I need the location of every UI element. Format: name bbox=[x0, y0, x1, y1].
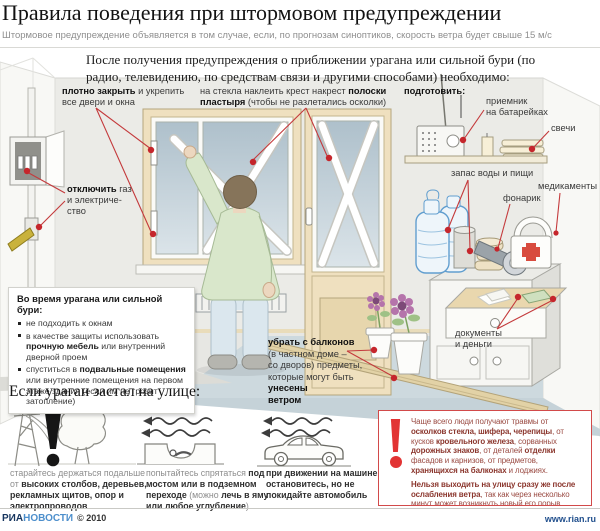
leaf bbox=[367, 315, 377, 321]
drawer-knob bbox=[491, 319, 500, 328]
shoe bbox=[242, 355, 271, 369]
pants-leg bbox=[211, 295, 236, 363]
head bbox=[224, 176, 257, 209]
red-cross bbox=[522, 247, 540, 257]
infographic-storm-warning: Правила поведения при штормовом предупре… bbox=[0, 0, 600, 531]
warning-paragraph: Чаще всего люди получают травмы от оскол… bbox=[411, 417, 584, 476]
label-gas-electricity: отключить гази электриче-ство bbox=[67, 184, 137, 217]
pot-rim bbox=[366, 328, 394, 335]
label-radio: приемникна батарейках bbox=[486, 96, 548, 118]
label-documents-money: документыи деньги bbox=[455, 328, 502, 350]
candle-icon bbox=[482, 137, 493, 157]
breaker-switches bbox=[18, 156, 37, 169]
label-medicines: медикаменты bbox=[538, 181, 597, 192]
flower-pot-icon bbox=[394, 340, 424, 374]
can-lid bbox=[454, 227, 475, 234]
pot-rim bbox=[391, 333, 427, 341]
underpass-icon bbox=[137, 444, 224, 464]
car-icon bbox=[257, 436, 351, 466]
door-knob bbox=[470, 357, 478, 365]
radio-dial bbox=[447, 135, 459, 147]
street-section-heading: Если ураган застал на улице: bbox=[9, 383, 200, 401]
street-tip-poles: старайтесь держаться подальше от высоких… bbox=[10, 468, 150, 512]
cabinet bbox=[430, 264, 566, 386]
shelf-board bbox=[405, 156, 547, 163]
during-item: не подходить к окнам bbox=[17, 318, 186, 329]
intro-text: После получения предупреждения о приближ… bbox=[86, 52, 556, 86]
wind-arrows-icon bbox=[141, 417, 212, 438]
warning-exclamation-dot bbox=[390, 456, 402, 468]
leaf bbox=[408, 315, 420, 322]
warning-exclamation-icon bbox=[390, 419, 401, 452]
leaf bbox=[392, 319, 404, 326]
warning-box: Чаще всего люди получают травмы от оскол… bbox=[378, 410, 592, 506]
ria-novosti-logo: РИАНОВОСТИ© 2010 bbox=[2, 513, 106, 524]
during-storm-title: Во время урагана или сильной бури: bbox=[17, 293, 186, 315]
label-candles: свечи bbox=[551, 123, 575, 134]
tree-icon bbox=[58, 406, 105, 464]
bottle-cap bbox=[447, 196, 460, 208]
label-water-food: запас воды и пищи bbox=[451, 168, 533, 179]
hand bbox=[184, 146, 196, 158]
copyright: © 2010 bbox=[77, 513, 106, 523]
warning-paragraph: Нельзя выходить на улицу сразу же после … bbox=[411, 480, 584, 506]
bottle-cap bbox=[424, 200, 439, 214]
label-flashlight: фонарик bbox=[503, 193, 541, 204]
fuse-box-door bbox=[46, 131, 64, 187]
during-item: в качестве защиты использовать прочную м… bbox=[17, 331, 186, 363]
water-bottle-icon bbox=[416, 212, 449, 273]
page-subtitle: Штормовое предупреждение объявляется в т… bbox=[2, 30, 552, 41]
site-link[interactable]: www.rian.ru bbox=[545, 514, 596, 524]
footer-divider bbox=[0, 508, 600, 509]
header-divider bbox=[0, 47, 600, 48]
lying-person-body bbox=[176, 452, 190, 455]
street-tip-underpass: попытайтесь спрятаться под мостом или в … bbox=[146, 468, 272, 512]
door-knob bbox=[493, 357, 501, 365]
shoe bbox=[208, 355, 237, 369]
pants-leg bbox=[243, 295, 268, 363]
page-title: Правила поведения при штормовом предупре… bbox=[2, 0, 501, 26]
wind-arrows-icon bbox=[261, 417, 332, 438]
brand-novosti: НОВОСТИ bbox=[23, 513, 73, 524]
hand bbox=[263, 283, 275, 298]
label-balcony: убрать с балконов(в частном доме –со дво… bbox=[268, 337, 388, 406]
door-handle bbox=[306, 208, 312, 225]
label-prepare: подготовить: bbox=[404, 86, 465, 97]
brand-ria: РИА bbox=[2, 513, 23, 524]
street-illustrations bbox=[8, 406, 351, 466]
gas-pipe bbox=[28, 88, 35, 300]
leaf bbox=[380, 311, 390, 317]
